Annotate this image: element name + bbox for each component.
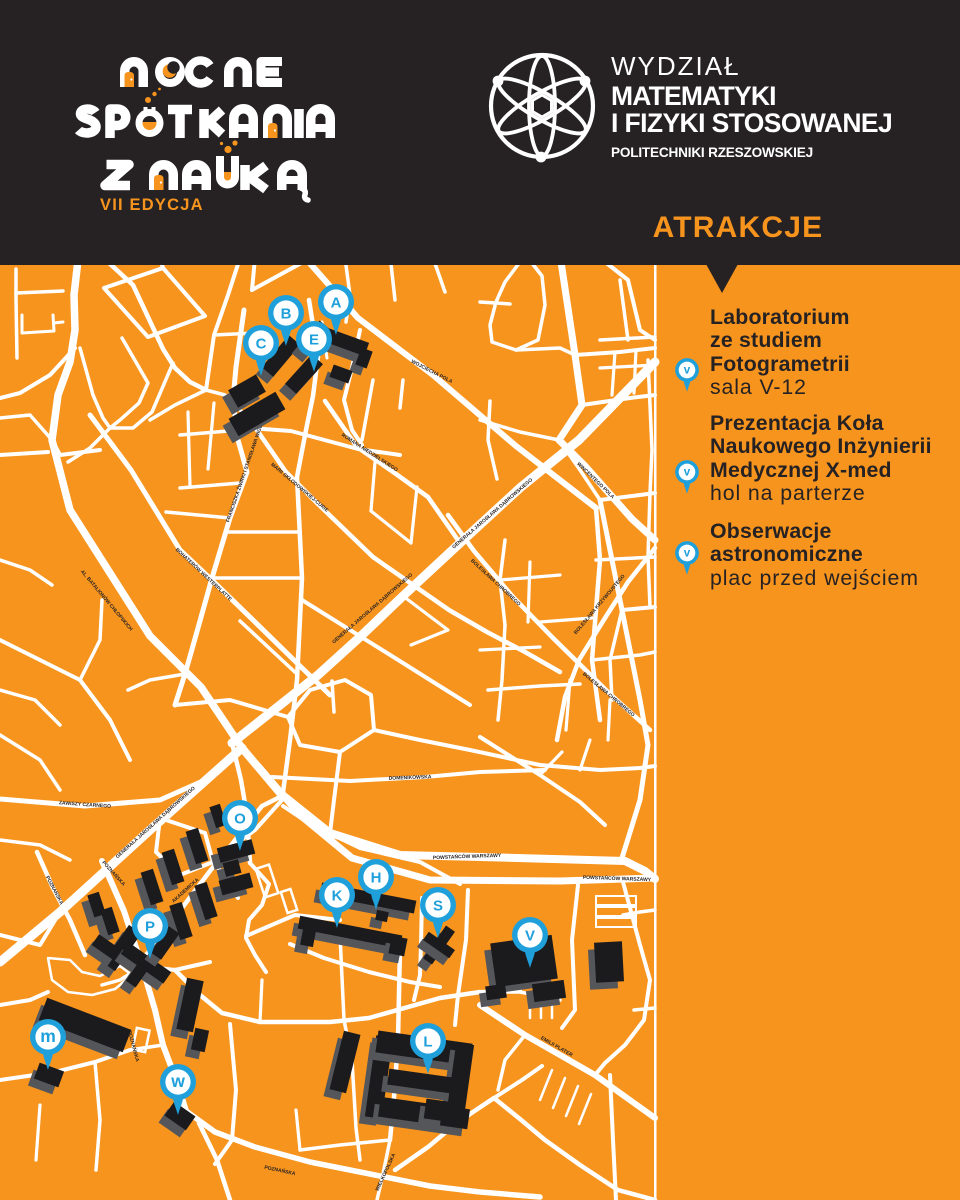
svg-text:C: C xyxy=(256,336,267,353)
svg-text:m: m xyxy=(40,1026,56,1046)
svg-text:v: v xyxy=(684,466,691,478)
svg-text:WYDZIAŁ: WYDZIAŁ xyxy=(611,51,741,81)
svg-text:v: v xyxy=(684,364,691,376)
svg-text:POLITECHNIKI RZESZOWSKIEJ: POLITECHNIKI RZESZOWSKIEJ xyxy=(611,145,813,160)
svg-text:L: L xyxy=(423,1034,432,1051)
svg-text:E: E xyxy=(309,332,319,349)
svg-text:MATEMATYKI: MATEMATYKI xyxy=(611,81,776,111)
svg-text:S: S xyxy=(433,898,443,915)
svg-text:I FIZYKI STOSOWANEJ: I FIZYKI STOSOWANEJ xyxy=(611,108,892,138)
svg-text:O: O xyxy=(234,811,246,828)
svg-text:A: A xyxy=(331,295,342,312)
svg-text:ATRAKCJE: ATRAKCJE xyxy=(653,211,824,244)
svg-text:B: B xyxy=(281,306,292,323)
svg-text:V: V xyxy=(525,928,535,945)
svg-text:K: K xyxy=(332,888,343,905)
svg-text:w: w xyxy=(170,1071,185,1091)
svg-text:P: P xyxy=(145,919,155,936)
svg-text:H: H xyxy=(371,870,382,887)
svg-text:v: v xyxy=(684,547,691,559)
